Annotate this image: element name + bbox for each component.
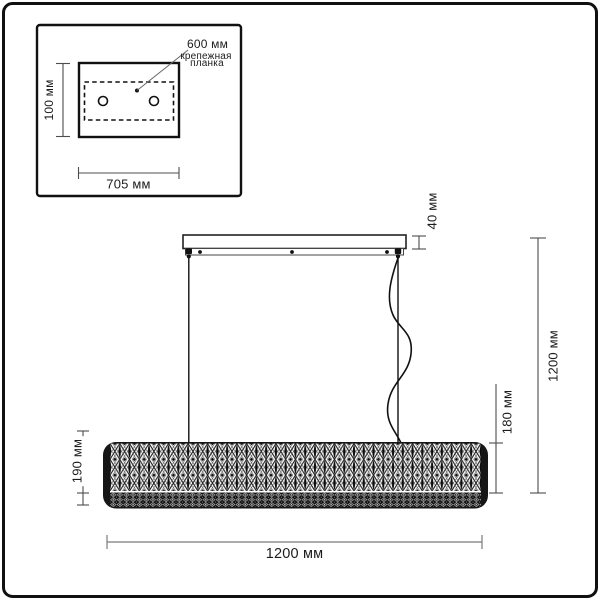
mounting-hole-left xyxy=(99,97,108,106)
shade-bottom-band xyxy=(110,493,481,508)
screw-dot xyxy=(385,250,389,254)
shade-body-height-label: 180 мм xyxy=(500,390,513,434)
shade-height-label: 190 мм xyxy=(70,436,85,486)
overall-width-label: 1200 мм xyxy=(266,547,324,562)
mounting-hole-right xyxy=(150,97,159,106)
canopy-top-view xyxy=(79,63,179,137)
inset-height-label: 100 мм xyxy=(43,79,55,120)
overall-height-label: 1200 мм xyxy=(546,330,559,382)
plate-width-label: 600 мм xyxy=(187,38,228,50)
inset-width-label: 705 мм xyxy=(106,178,150,191)
crystal-shade xyxy=(103,442,488,509)
line-art xyxy=(0,0,600,600)
plate-name-line2: планка xyxy=(190,59,224,69)
fixture-dimension-diagram: 600 мм крепежная планка 100 мм 705 мм 40… xyxy=(0,0,600,600)
screw-dot xyxy=(290,250,294,254)
ceiling-canopy xyxy=(183,235,406,259)
cable-grip-left xyxy=(186,248,192,254)
cable-grip-right xyxy=(395,248,401,254)
shade-main-crystal-section xyxy=(110,444,481,492)
canopy-height-label: 40 мм xyxy=(425,193,438,230)
screw-dot xyxy=(198,250,202,254)
